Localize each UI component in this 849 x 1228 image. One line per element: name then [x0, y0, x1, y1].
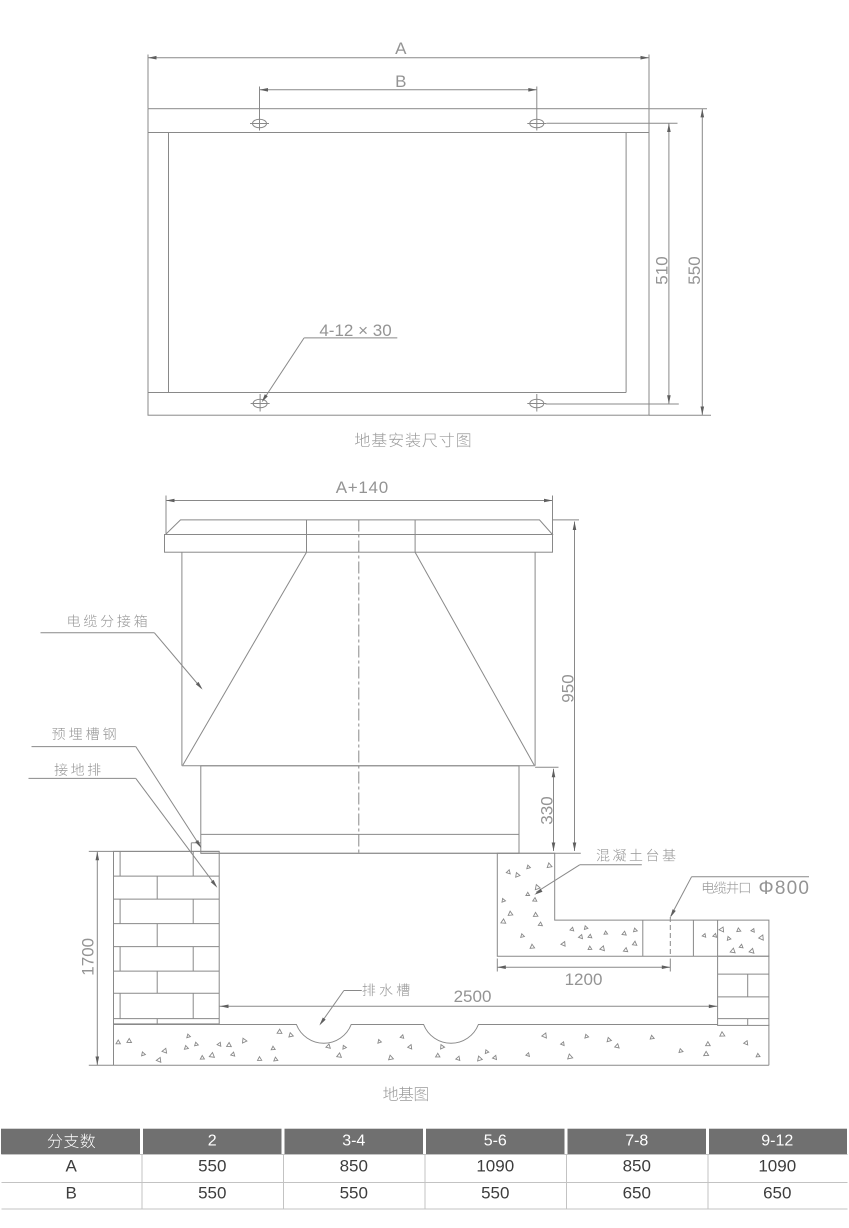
svg-text:1090: 1090: [476, 1157, 514, 1176]
svg-text:550: 550: [481, 1184, 509, 1203]
svg-text:3-4: 3-4: [342, 1133, 365, 1150]
svg-text:650: 650: [763, 1184, 791, 1203]
svg-text:A: A: [395, 39, 407, 58]
svg-text:550: 550: [198, 1157, 226, 1176]
svg-text:5-6: 5-6: [484, 1133, 507, 1150]
svg-text:B: B: [395, 72, 406, 91]
svg-text:510: 510: [652, 256, 671, 284]
svg-text:7-8: 7-8: [625, 1133, 648, 1150]
svg-text:A+140: A+140: [336, 478, 389, 497]
svg-text:550: 550: [198, 1184, 226, 1203]
svg-text:B: B: [66, 1184, 77, 1203]
svg-text:1090: 1090: [758, 1157, 796, 1176]
svg-text:2500: 2500: [454, 987, 492, 1006]
svg-text:1200: 1200: [565, 970, 603, 989]
svg-text:9-12: 9-12: [761, 1133, 793, 1150]
svg-text:650: 650: [623, 1184, 651, 1203]
svg-text:1700: 1700: [79, 938, 98, 976]
svg-text:550: 550: [340, 1184, 368, 1203]
svg-text:850: 850: [623, 1157, 651, 1176]
svg-text:2: 2: [208, 1133, 217, 1150]
svg-text:550: 550: [685, 256, 704, 284]
svg-text:850: 850: [340, 1157, 368, 1176]
svg-text:950: 950: [559, 674, 578, 702]
svg-text:Φ800: Φ800: [759, 878, 811, 899]
svg-text:A: A: [66, 1157, 78, 1176]
svg-text:330: 330: [537, 796, 556, 824]
svg-text:4-12 × 30: 4-12 × 30: [319, 321, 391, 340]
